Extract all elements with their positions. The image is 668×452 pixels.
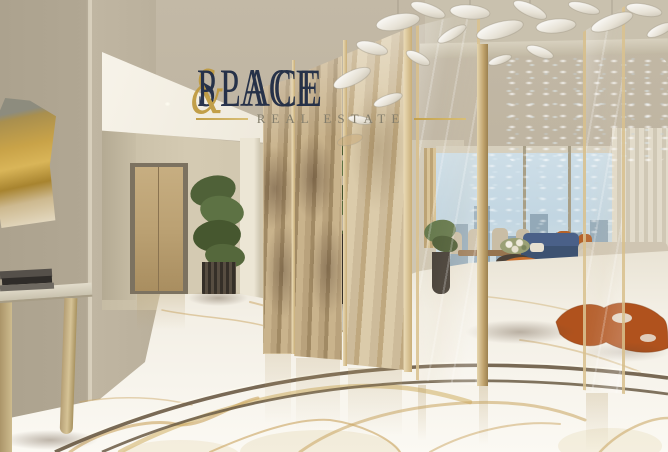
panel-gold-edge [292,60,295,354]
glass-leaves [331,0,668,148]
divider-panel-bronze [263,78,292,354]
glass-leaf-chandelier [330,0,668,150]
rug-spot [640,334,656,342]
interior-rendering: SPACE&PLACE REAL ESTATE [0,0,668,452]
console-table-rear-leg [0,296,12,452]
